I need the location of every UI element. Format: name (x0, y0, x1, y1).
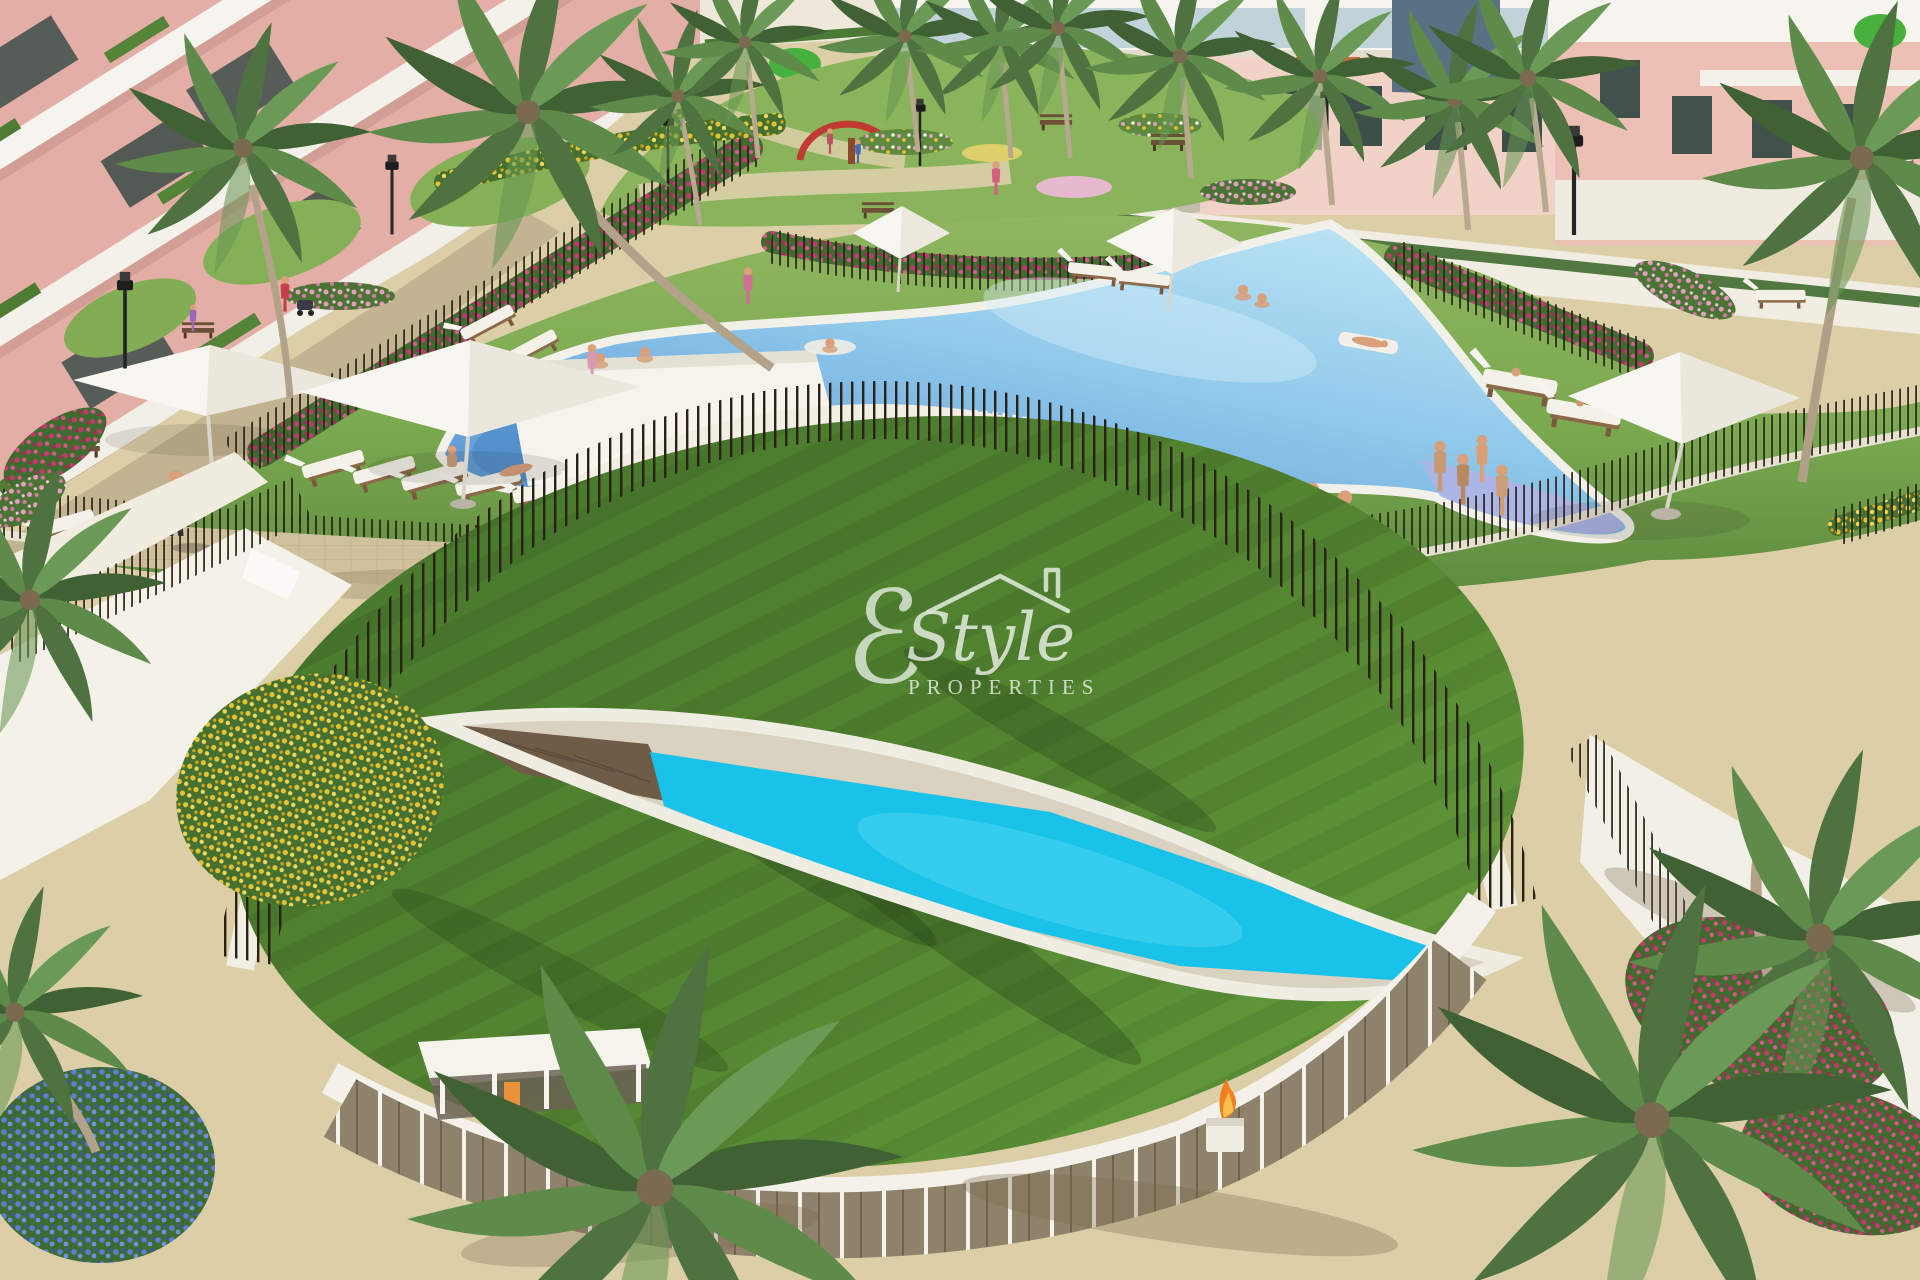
play-pad-pink (1036, 176, 1112, 198)
render-canvas: ℰ Style PROPERTIES (0, 0, 1920, 1280)
watermark-caps: PROPERTIES (908, 675, 1100, 699)
flower-bed (857, 129, 953, 155)
flower-bed (1200, 179, 1296, 205)
resort-aerial-render: ℰ Style PROPERTIES (0, 0, 1920, 1280)
